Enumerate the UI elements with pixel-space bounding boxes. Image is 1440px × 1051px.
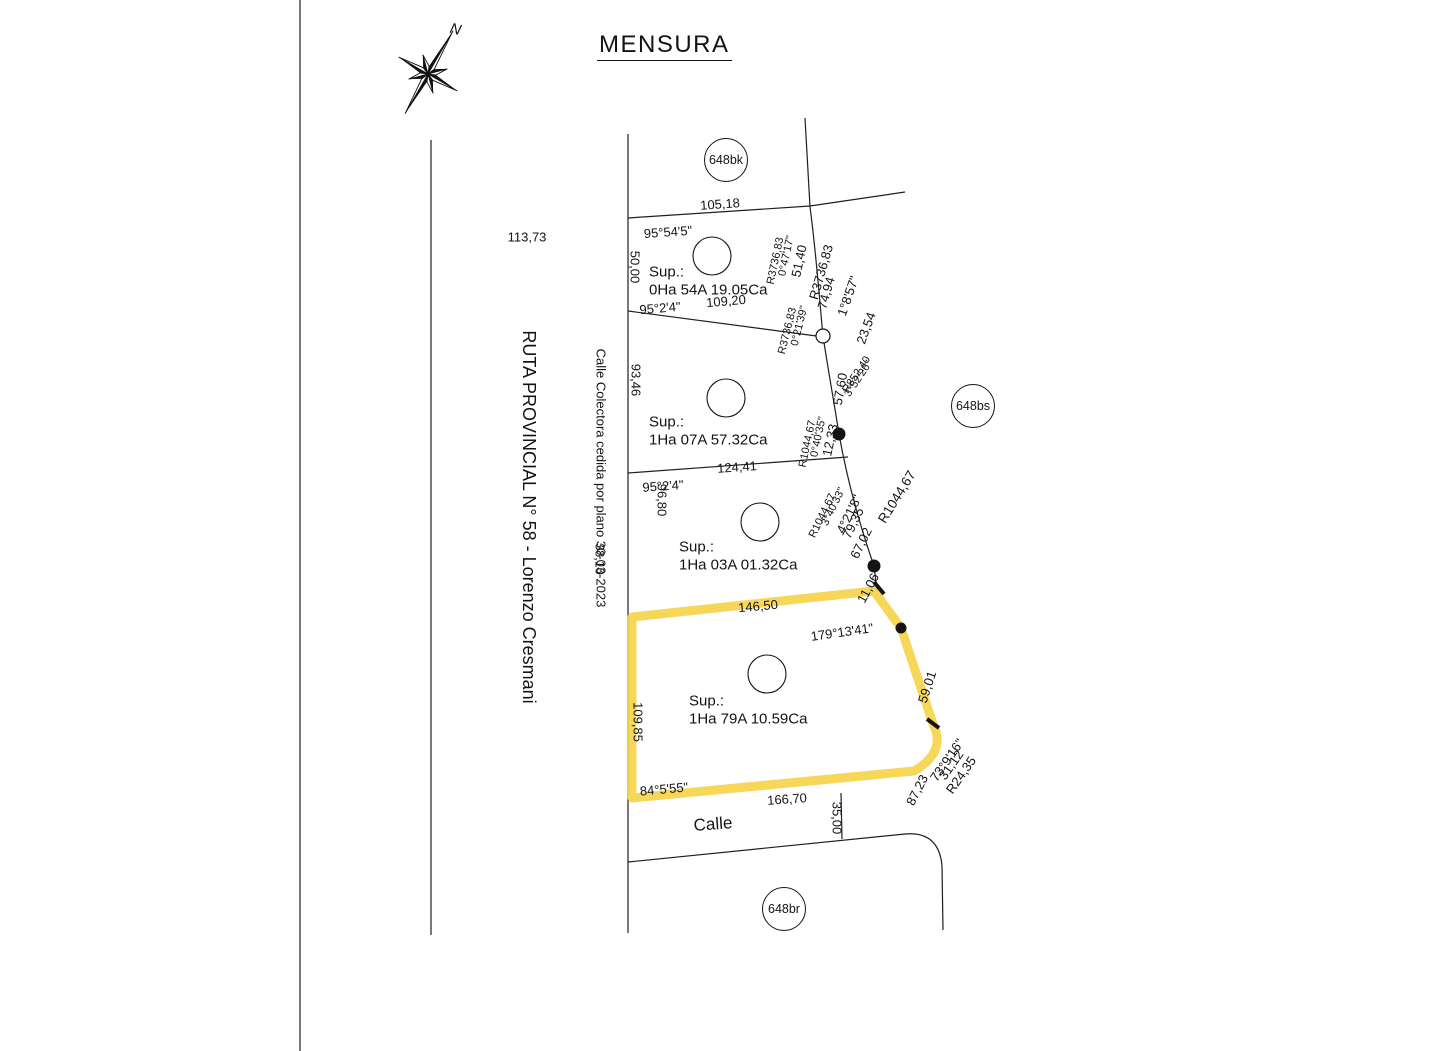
ang-95-54-5: 95°54'5": [643, 224, 692, 240]
p4-sup-value: 1Ha 79A 10.59Ca: [689, 712, 807, 727]
parcel-badge-648br: 648br: [762, 887, 806, 931]
parcel-badge-648bk: 648bk: [704, 138, 748, 182]
p3-sup-value: 1Ha 03A 01.32Ca: [679, 558, 797, 573]
ang-95-2-4-a: 95°2'4": [639, 300, 681, 317]
dim-113-73: 113,73: [508, 231, 547, 244]
survey-plan-sheet: MENSURA N 113,73RUTA PROVINCIAL N° 58 - …: [0, 0, 1440, 1051]
compass-rose-icon: [399, 31, 458, 114]
highlighted-parcel-outline: [632, 591, 937, 798]
ang-84-5-55: 84°5'55": [639, 780, 688, 797]
dim-109-20: 109,20: [706, 293, 747, 309]
dim-109-85: 109,85: [632, 702, 645, 742]
dim-38-10: 38,10: [593, 543, 606, 574]
p1-sup-title: Sup.:: [649, 265, 684, 280]
page-title: MENSURA: [597, 33, 732, 61]
dim-96-80: 96,80: [656, 484, 669, 517]
dim-146-50: 146,50: [738, 598, 779, 614]
dim-166-70: 166,70: [767, 791, 808, 807]
dim-50-00: 50,00: [629, 251, 642, 284]
p4-sup-title: Sup.:: [689, 694, 724, 709]
ruta-name: RUTA PROVINCIAL N° 58 - Lorenzo Cresmani: [520, 330, 538, 703]
p2-sup-value: 1Ha 07A 57.32Ca: [649, 433, 767, 448]
p2-sup-title: Sup.:: [649, 415, 684, 430]
dim-124-41: 124,41: [717, 459, 758, 475]
dim-105-18: 105,18: [700, 196, 741, 212]
parcel-badge-648bs: 648bs: [951, 384, 995, 428]
p3-sup-title: Sup.:: [679, 540, 714, 555]
dim-35-00: 35,00: [831, 802, 844, 835]
calle-name: Calle: [693, 814, 733, 834]
dim-93-46: 93,46: [630, 364, 643, 397]
